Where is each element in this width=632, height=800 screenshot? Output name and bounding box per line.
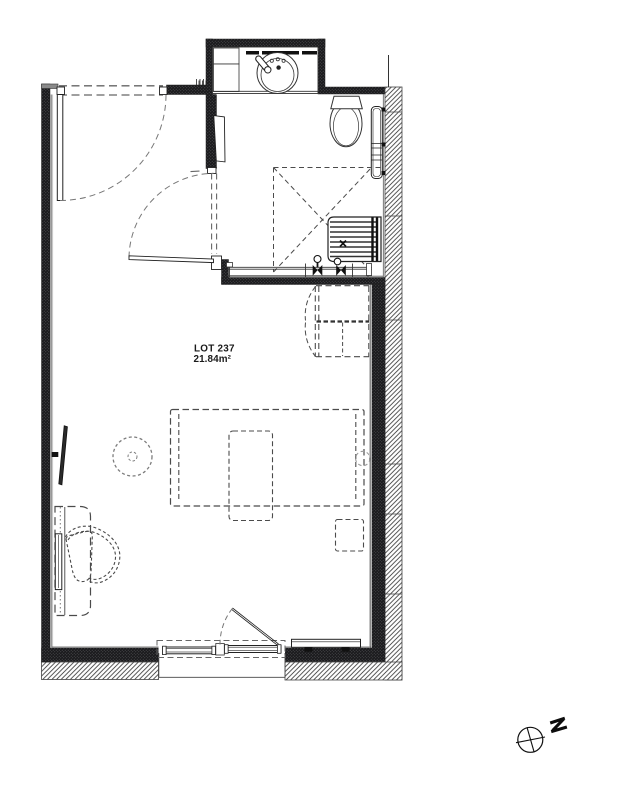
svg-text:21.84m²: 21.84m²: [194, 354, 232, 365]
